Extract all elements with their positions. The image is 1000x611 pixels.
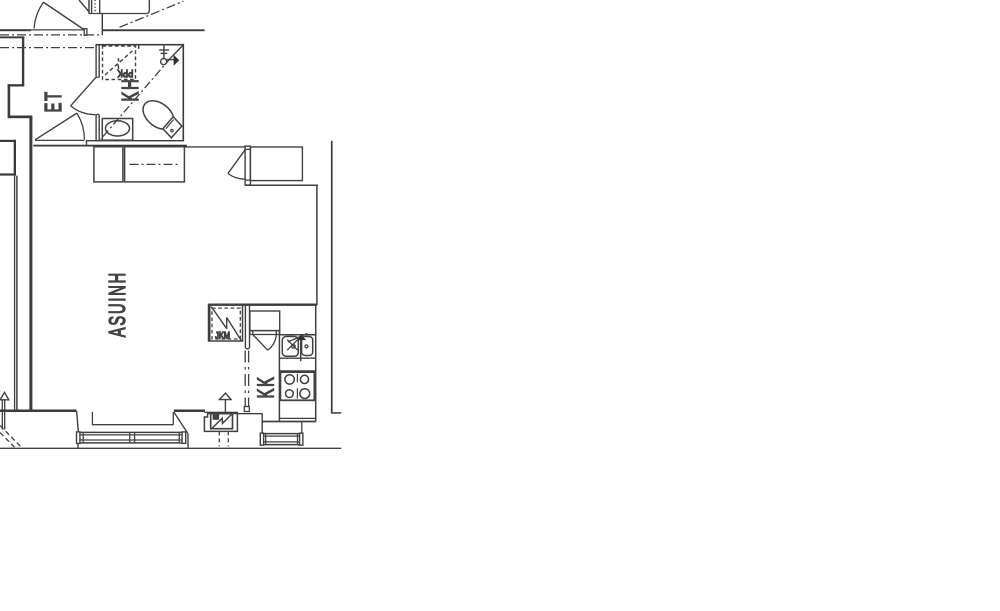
- svg-text:ASUINH: ASUINH: [105, 271, 131, 337]
- svg-text:M: M: [213, 412, 219, 421]
- svg-text:JKM: JKM: [215, 329, 230, 340]
- svg-text:PPK: PPK: [117, 68, 133, 79]
- svg-text:KH: KH: [118, 78, 144, 102]
- svg-text:KK: KK: [253, 375, 279, 398]
- svg-text:ET: ET: [41, 90, 67, 112]
